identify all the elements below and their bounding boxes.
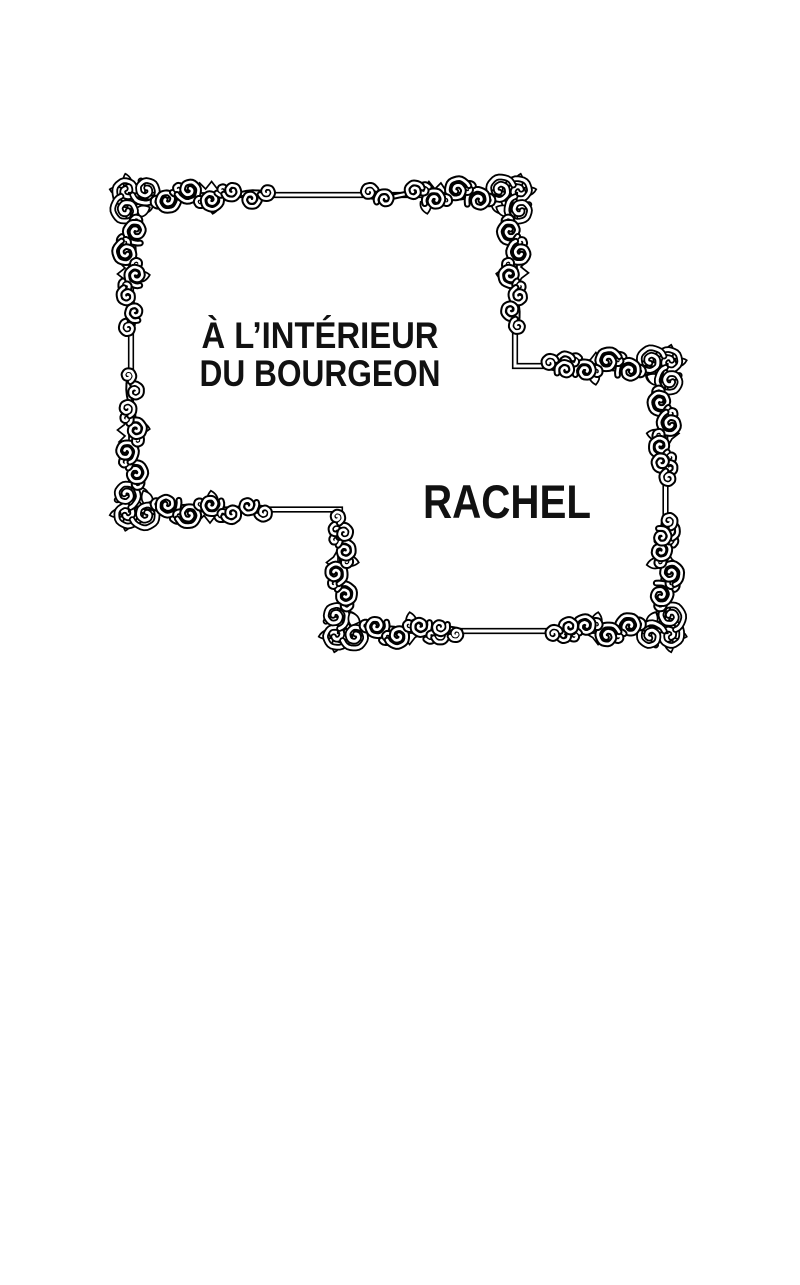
svg-text:DU BOURGEON: DU BOURGEON — [200, 353, 441, 394]
svg-text:À L’INTÉRIEUR: À L’INTÉRIEUR — [202, 315, 439, 356]
svg-text:RACHEL: RACHEL — [423, 475, 591, 528]
